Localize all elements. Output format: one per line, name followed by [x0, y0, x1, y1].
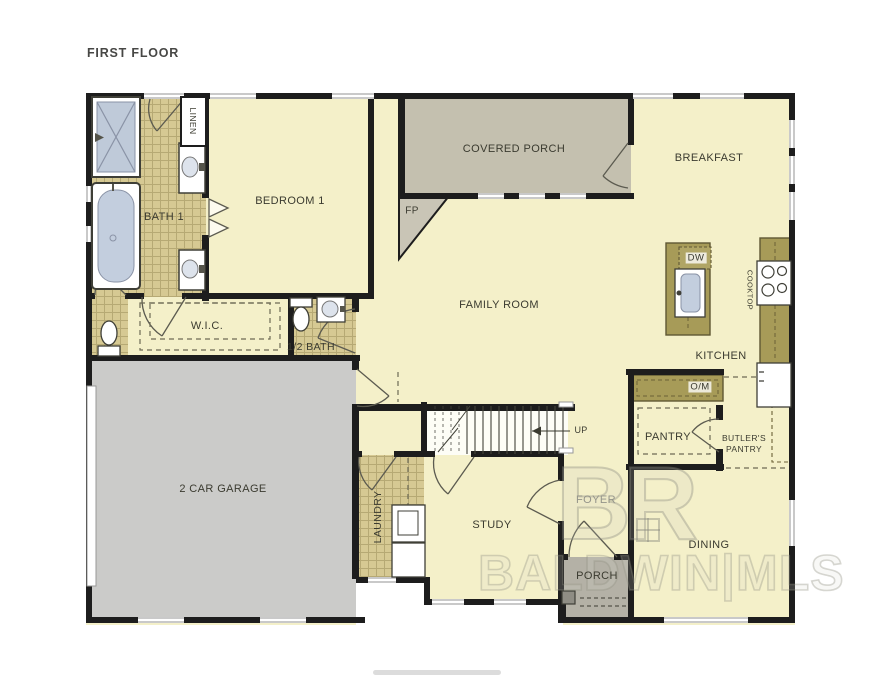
- toilet-half-bath: [290, 298, 312, 307]
- label-dining: DINING: [689, 539, 730, 551]
- watermark-text: BALDWIN|MLS: [478, 548, 845, 598]
- label-covered-porch: COVERED PORCH: [463, 143, 565, 155]
- label-pantry: PANTRY: [645, 431, 691, 443]
- dryer: [392, 543, 425, 577]
- label-bedroom1: BEDROOM 1: [255, 195, 325, 207]
- watermark-grid-icon: [636, 518, 660, 542]
- label-breakfast: BREAKFAST: [675, 152, 743, 164]
- label-wic: W.I.C.: [191, 320, 223, 332]
- label-porch: PORCH: [576, 570, 618, 582]
- scrollbar-hint: [373, 670, 501, 675]
- floorplan-canvas: FIRST FLOOR BATH 1 BEDROOM 1 LINEN W.I.C…: [0, 0, 880, 680]
- label-garage: 2 CAR GARAGE: [179, 483, 266, 495]
- page-title: FIRST FLOOR: [87, 46, 179, 60]
- label-fireplace: FP: [405, 206, 419, 217]
- cooktop-appliance: [757, 261, 791, 305]
- label-butlers-pantry: BUTLER'S PANTRY: [714, 433, 774, 455]
- garage-door: [87, 386, 96, 586]
- label-study: STUDY: [472, 519, 511, 531]
- label-laundry: LAUNDRY: [372, 491, 384, 544]
- label-dishwasher: DW: [686, 253, 707, 264]
- label-oven-microwave: O/M: [688, 382, 711, 393]
- label-foyer: FOYER: [576, 494, 616, 506]
- label-linen: LINEN: [188, 107, 198, 134]
- label-cooktop: COOKTOP: [746, 270, 755, 310]
- refrigerator: [757, 363, 791, 407]
- label-up: UP: [575, 425, 588, 435]
- label-half-bath: 1/2 BATH: [287, 341, 335, 353]
- toilet-bath1: [98, 346, 120, 356]
- label-bath1: BATH 1: [144, 211, 184, 223]
- label-kitchen: KITCHEN: [695, 350, 746, 362]
- label-family-room: FAMILY ROOM: [459, 299, 539, 311]
